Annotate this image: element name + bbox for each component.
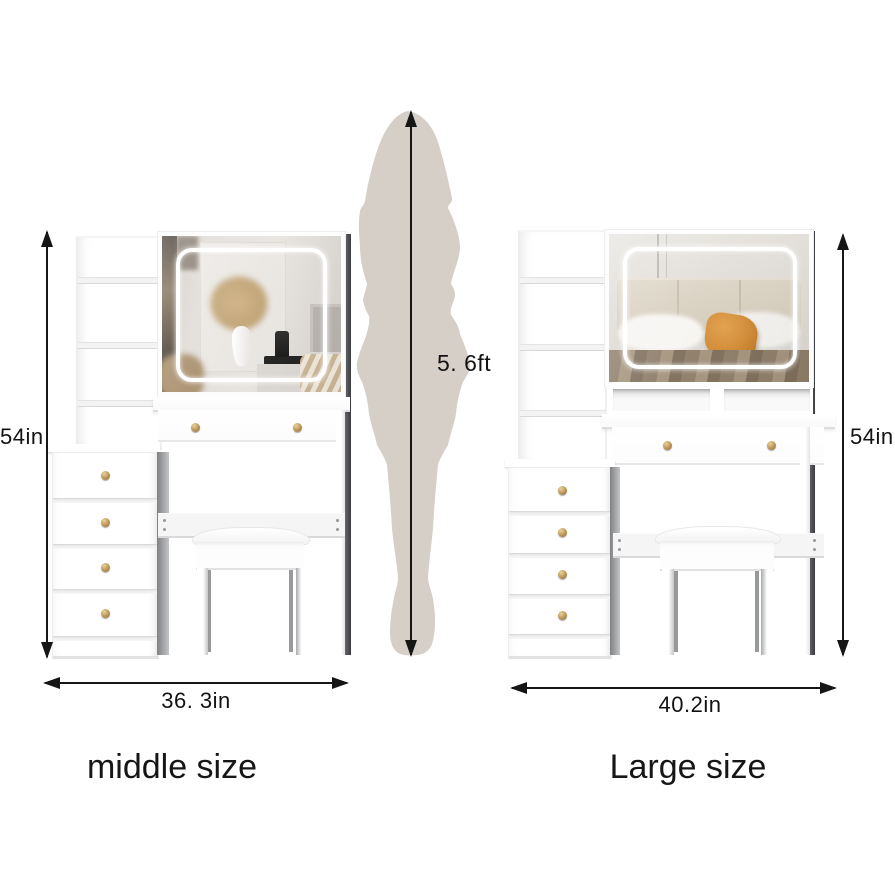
led-light-ring bbox=[176, 248, 327, 382]
height-arrow-middle bbox=[46, 232, 48, 657]
screw-dot bbox=[618, 548, 621, 551]
drawer-separator bbox=[53, 498, 158, 503]
height-label-large: 54in bbox=[850, 424, 894, 450]
screw-dot bbox=[813, 548, 816, 551]
height-arrow-large bbox=[842, 235, 844, 655]
drawer-knob bbox=[663, 441, 672, 450]
stool-leg bbox=[197, 568, 208, 655]
chest-knob bbox=[101, 471, 110, 480]
drawer-knob bbox=[191, 423, 200, 432]
width-label-middle: 36. 3in bbox=[126, 688, 266, 714]
drawer-separator bbox=[509, 634, 611, 639]
mirror-reflection bbox=[162, 236, 341, 392]
shelf-board bbox=[78, 277, 162, 284]
desk-side-panel bbox=[157, 452, 169, 655]
drawer-separator bbox=[53, 544, 158, 549]
shelf-board bbox=[520, 410, 607, 417]
drawer-chest bbox=[52, 452, 159, 659]
stool-leg bbox=[296, 568, 307, 655]
drawer-separator bbox=[53, 589, 158, 594]
shelf-board bbox=[520, 344, 607, 351]
shelf-column bbox=[518, 230, 607, 467]
vanity-size-comparison-image: 54in 54in 5. 6ft 36. 3in 40.2in middle s… bbox=[0, 0, 895, 895]
height-label-middle: 54in bbox=[0, 424, 43, 450]
product-name-large: Large size bbox=[576, 748, 800, 787]
desk-side-panel bbox=[610, 467, 620, 655]
drawer-separator bbox=[509, 553, 611, 558]
desk-drawer bbox=[158, 410, 337, 442]
shelf-board bbox=[78, 400, 162, 407]
chest-knob bbox=[558, 486, 567, 495]
width-arrow-middle bbox=[45, 682, 347, 684]
stool-base bbox=[660, 541, 774, 571]
drawer-separator bbox=[53, 636, 158, 641]
drawer-chest bbox=[508, 467, 612, 659]
width-arrow-large bbox=[512, 687, 835, 689]
vanity-mirror bbox=[158, 232, 345, 397]
stool-back-leg bbox=[289, 566, 293, 652]
width-label-large: 40.2in bbox=[600, 692, 780, 718]
stool-leg bbox=[761, 569, 773, 655]
screw-dot bbox=[618, 539, 621, 542]
mirror-reflection bbox=[609, 234, 809, 382]
stool-leg bbox=[662, 569, 674, 655]
chest-knob bbox=[558, 611, 567, 620]
vanity-mirror bbox=[605, 230, 813, 387]
person-height-label: 5. 6ft bbox=[437, 350, 491, 377]
screw-dot bbox=[163, 519, 166, 522]
screw-dot bbox=[163, 528, 166, 531]
shelf-column bbox=[76, 236, 162, 450]
person-height-arrow bbox=[410, 112, 412, 655]
stool-back-leg bbox=[755, 567, 759, 652]
shelf-board bbox=[520, 277, 607, 284]
drawer-knob bbox=[767, 441, 776, 450]
screw-dot bbox=[813, 539, 816, 542]
chest-knob bbox=[558, 570, 567, 579]
cubby-opening bbox=[613, 389, 710, 411]
led-light-ring bbox=[623, 247, 797, 369]
screw-dot bbox=[336, 528, 339, 531]
screw-dot bbox=[336, 519, 339, 522]
stool-base bbox=[196, 542, 304, 570]
chest-knob bbox=[101, 518, 110, 527]
product-name-middle: middle size bbox=[60, 748, 284, 787]
chest-knob bbox=[101, 563, 110, 572]
cubby-opening bbox=[724, 389, 810, 411]
drawer-knob bbox=[293, 423, 302, 432]
shelf-board bbox=[78, 342, 162, 349]
drawer-separator bbox=[509, 594, 611, 599]
chest-knob bbox=[101, 609, 110, 618]
stool-back-leg bbox=[674, 567, 678, 652]
drawer-separator bbox=[509, 511, 611, 516]
chest-knob bbox=[558, 528, 567, 537]
desk-drawer bbox=[612, 427, 824, 465]
